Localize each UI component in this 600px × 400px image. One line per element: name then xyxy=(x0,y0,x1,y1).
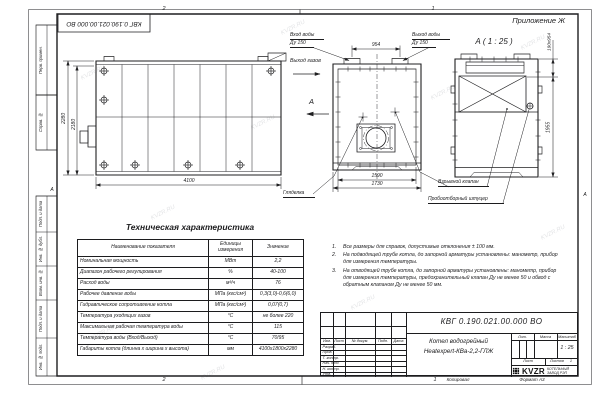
sheets-label: Листов xyxy=(550,359,564,363)
company-logo: KVZR КОТЕЛЬНЫЙ ЗАВОД РЭП xyxy=(512,366,577,377)
spec-table: Наименование показателя Единицы измерени… xyxy=(77,239,304,356)
spec-units: мм xyxy=(209,345,253,356)
company-name: КОТЕЛЬНЫЙ ЗАВОД РЭП xyxy=(547,367,569,375)
sign-row-razrab: Разраб. xyxy=(323,345,337,349)
callout-water-inlet-dn: Ду 150 xyxy=(290,41,314,48)
note-item: 3. На отводящей трубе котла, до запорной… xyxy=(332,268,566,289)
product-name-line2: Heatexpert-КВа-2,2-ГЛЖ xyxy=(406,349,511,356)
fitting-marks xyxy=(99,66,276,170)
spec-units: МПа (кгс/см²) xyxy=(209,301,253,312)
margin-label-vzam-inv: Взам. инв. № xyxy=(36,266,47,300)
col-data: Дата xyxy=(391,339,406,343)
dim-954: 954 xyxy=(360,43,392,49)
dim-1590: 1590 xyxy=(358,174,396,180)
spec-row: Температура воды (Вход/Выход)°С70/95 xyxy=(78,334,304,345)
spec-units: °С xyxy=(209,334,253,345)
dim-1730: 1730 xyxy=(358,182,396,188)
spec-name: Температура уходящих газов xyxy=(78,312,209,323)
callout-water-outlet-dn: Ду 150 xyxy=(412,41,436,48)
callout-sight-glass: Гляделка xyxy=(283,191,315,198)
appendix-label: Приложение Ж xyxy=(440,17,565,25)
sign-row-nkontr: Н. контр. xyxy=(323,367,340,371)
section-arrow-label: А xyxy=(309,98,321,106)
col-izm: Изм. xyxy=(321,339,333,343)
col-podp: Подп. xyxy=(375,339,391,343)
spec-value: 2,2 xyxy=(253,257,304,268)
spec-header-row: Наименование показателя Единицы измерени… xyxy=(78,240,304,257)
side-view xyxy=(63,53,286,189)
spec-value: 70/95 xyxy=(253,334,304,345)
spec-row: Максимальная рабочая температура воды°С1… xyxy=(78,323,304,334)
spec-col-units: Единицы измерения xyxy=(209,240,253,257)
spec-name: Максимальная рабочая температура воды xyxy=(78,323,209,334)
drawing-sheet: KVZR.RU KVZR.RU KVZR.RU KVZR.RU KVZR.RU … xyxy=(0,0,600,400)
dim-190x954: 190х954 xyxy=(545,27,553,58)
sheets-cell: Листов 1 xyxy=(545,359,577,363)
company-name-line2: ЗАВОД РЭП xyxy=(547,371,569,375)
spec-col-value: Значение xyxy=(253,240,304,257)
callout-water-inlet: Вход воды xyxy=(290,33,324,40)
spec-units: % xyxy=(209,268,253,279)
margin-label-podp-data-1: Подп. и дата xyxy=(36,196,47,232)
dim-2280: 2280 xyxy=(61,92,68,144)
spec-value: 76 xyxy=(253,279,304,290)
note-number: 3. xyxy=(332,268,343,289)
sign-row-tkontr: Т. контр. xyxy=(323,356,339,360)
col-list: Лист xyxy=(333,339,345,343)
note-number: 2. xyxy=(332,252,343,266)
sign-row-prov: Пров. xyxy=(323,350,333,354)
spec-name: Рабочее давление воды xyxy=(78,290,209,301)
spec-name: Температура воды (Вход/Выход) xyxy=(78,334,209,345)
sheets-value: 1 xyxy=(570,359,572,363)
zone-number-top-left: 2 xyxy=(158,6,170,12)
margin-label-podp-data-2: Подп. и дата xyxy=(36,300,47,338)
note-text: На отводящей трубе котла, до запорной ар… xyxy=(343,268,566,289)
spec-units: МПа (кгс/см²) xyxy=(209,290,253,301)
spec-value: не более 220 xyxy=(253,312,304,323)
spec-value: 4100х1800х2280 xyxy=(253,345,304,356)
zone-letter-left: А xyxy=(48,188,56,194)
spec-name: Диапазон рабочего регулирования xyxy=(78,268,209,279)
spec-row: Гидравлическое сопротивление котлаМПа (к… xyxy=(78,301,304,312)
kvzr-logo-mark xyxy=(512,367,520,375)
spec-row: Рабочее давление водыМПа (кгс/см²)0,3(3,… xyxy=(78,290,304,301)
zone-number-top-right: 1 xyxy=(427,6,439,12)
note-item: 2. На подводящей трубе котла, до запорно… xyxy=(332,252,566,266)
mass-label: Масса xyxy=(534,335,557,339)
sign-row-utv: Утв. xyxy=(323,372,332,376)
title-block: КВГ 0.190.021.00.000 ВО Котел водогрейны… xyxy=(320,312,578,376)
zone-number-bottom-left: 2 xyxy=(158,377,170,383)
spec-name: Габариты котла (длинна х ширина х высота… xyxy=(78,345,209,356)
margin-label-inv-dubl: Инв. № дубл. xyxy=(36,232,47,266)
scale-value: 1 : 25 xyxy=(557,346,577,352)
spec-name: Расход воды xyxy=(78,279,209,290)
spec-value: 115 xyxy=(253,323,304,334)
note-text: Все размеры для справок, допустимые откл… xyxy=(343,244,566,251)
kvzr-logo-text: KVZR xyxy=(522,367,545,376)
spec-row: Температура уходящих газов°Сне более 220 xyxy=(78,312,304,323)
spec-value: 40-100 xyxy=(253,268,304,279)
spec-row: Расход водым³/ч76 xyxy=(78,279,304,290)
col-docnum: № докум. xyxy=(345,339,375,343)
format-label: Формат А3 xyxy=(497,377,567,382)
doc-number-top: КВГ 0.190.021.00.000 ВО xyxy=(58,14,150,32)
dim-2180: 2180 xyxy=(71,100,78,148)
spec-row: Номинальная мощностьМВт2,2 xyxy=(78,257,304,268)
copied-label: Копировал xyxy=(428,377,488,382)
dim-4100: 4100 xyxy=(170,179,208,185)
note-item: 1. Все размеры для справок, допустимые о… xyxy=(332,244,566,251)
product-name-line1: Котел водогрейный xyxy=(406,339,511,346)
spec-units: °С xyxy=(209,312,253,323)
sheet-label: Лист xyxy=(511,359,545,363)
title-block-doc-number: КВГ 0.190.021.00.000 ВО xyxy=(406,318,577,326)
spec-col-name: Наименование показателя xyxy=(78,240,209,257)
spec-name: Номинальная мощность xyxy=(78,257,209,268)
callout-explosion-valve: Взрывной клапан xyxy=(438,180,489,187)
section-view-title: А ( 1 : 25 ) xyxy=(462,38,526,47)
spec-value: 0,3(3,0)-0,6(6,0) xyxy=(253,290,304,301)
product-name: Котел водогрейный Heatexpert-КВа-2,2-ГЛЖ xyxy=(406,339,511,355)
spec-units: °С xyxy=(209,323,253,334)
note-text: На подводящей трубе котла, до запорной а… xyxy=(343,252,566,266)
scale-label: Масштаб xyxy=(557,335,577,339)
lit-label: Лит. xyxy=(511,335,534,339)
spec-table-title: Техническая характеристика xyxy=(77,223,303,232)
notes-list: 1. Все размеры для справок, допустимые о… xyxy=(332,244,566,290)
margin-label-inv-podl: Инв. № подл. xyxy=(36,338,47,376)
sign-row-nachotd: Нач. отд. xyxy=(323,361,340,365)
spec-units: МВт xyxy=(209,257,253,268)
margin-label-sprav-no: Справ. № xyxy=(36,95,47,150)
spec-units: м³/ч xyxy=(209,279,253,290)
dim-1955: 1955 xyxy=(545,110,553,144)
spec-row: Габариты котла (длинна х ширина х высота… xyxy=(78,345,304,356)
units-line2: измерения xyxy=(211,248,250,254)
spec-row: Диапазон рабочего регулирования%40-100 xyxy=(78,268,304,279)
callout-sampling-fitting: Пробоотборный штуцер xyxy=(428,197,504,204)
note-number: 1. xyxy=(332,244,343,251)
spec-name: Гидравлическое сопротивление котла xyxy=(78,301,209,312)
margin-label-perv-primen: Перв. примен. xyxy=(36,25,47,95)
spec-value: 0,07(0,7) xyxy=(253,301,304,312)
callout-water-outlet: Выход воды xyxy=(412,33,450,40)
front-view xyxy=(293,46,449,195)
callout-gas-outlet: Выход газов xyxy=(290,59,334,65)
zone-letter-right: А xyxy=(581,193,589,199)
